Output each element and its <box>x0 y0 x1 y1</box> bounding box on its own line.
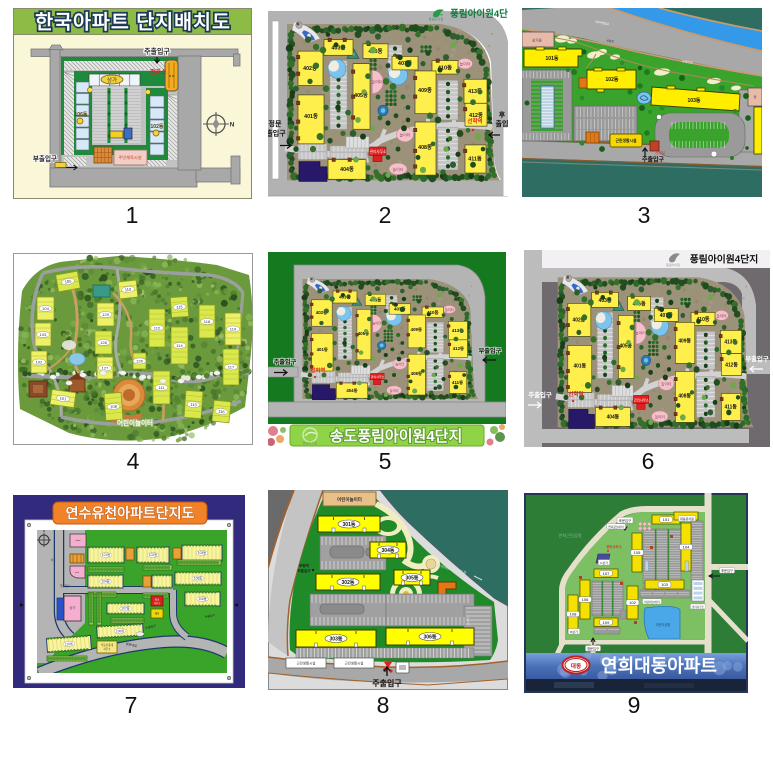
svg-text:109: 109 <box>603 620 610 625</box>
svg-text:●●●: ●●● <box>75 571 80 574</box>
svg-text:상가: 상가 <box>69 605 75 610</box>
svg-text:후: 후 <box>499 110 506 119</box>
svg-text:놀이터: 놀이터 <box>655 414 666 419</box>
svg-text:놀이터: 놀이터 <box>389 388 398 393</box>
svg-text:118: 118 <box>204 319 211 324</box>
svg-text:408동: 408동 <box>678 392 691 399</box>
svg-text:408동: 408동 <box>411 370 422 377</box>
svg-text:102동: 102동 <box>606 76 619 83</box>
svg-text:연수유천아파트단지도: 연수유천아파트단지도 <box>66 505 195 521</box>
svg-text:409동: 409동 <box>411 326 422 333</box>
svg-text:부출입구: 부출입구 <box>297 568 311 573</box>
svg-text:102: 102 <box>36 360 43 365</box>
svg-text:401동: 401동 <box>317 346 328 353</box>
svg-text:412동: 412동 <box>453 345 464 352</box>
svg-text:놀이터: 놀이터 <box>661 381 672 386</box>
svg-text:115: 115 <box>176 304 183 309</box>
svg-text:풍림아이원: 풍림아이원 <box>429 17 444 22</box>
svg-text:103동: 103동 <box>688 97 701 104</box>
svg-text:풍림아이원: 풍림아이원 <box>666 262 680 267</box>
svg-text:정문입구: 정문입구 <box>587 646 599 651</box>
svg-text:108: 108 <box>110 404 118 410</box>
svg-text:대동: 대동 <box>571 662 582 670</box>
svg-text:풍림아이원4단: 풍림아이원4단 <box>450 8 508 20</box>
svg-text:128: 128 <box>100 340 107 345</box>
svg-text:127: 127 <box>102 366 109 371</box>
svg-text:대동유치원: 대동유치원 <box>680 516 694 521</box>
svg-text:301동: 301동 <box>343 521 356 528</box>
svg-text:129: 129 <box>102 312 109 317</box>
svg-text:110동: 110동 <box>65 642 73 647</box>
svg-text:412동: 412동 <box>725 361 738 368</box>
svg-text:304동: 304동 <box>382 547 395 554</box>
svg-text:401동: 401동 <box>304 112 318 120</box>
svg-text:연희궁놀이터: 연희궁놀이터 <box>608 525 624 529</box>
svg-text:103: 103 <box>661 582 668 587</box>
svg-text:관리사무소: 관리사무소 <box>371 374 385 379</box>
svg-text:관리실: 관리실 <box>655 150 665 155</box>
svg-text:한국아파트 단지배치도: 한국아파트 단지배치도 <box>35 12 231 34</box>
svg-text:차도: 차도 <box>51 558 56 562</box>
svg-text:105동: 105동 <box>194 577 202 581</box>
svg-text:관리: 관리 <box>155 598 159 602</box>
svg-text:연희근린공원: 연희근린공원 <box>558 532 581 539</box>
svg-text:117: 117 <box>228 365 235 370</box>
svg-text:412동: 412동 <box>469 111 483 119</box>
svg-text:106: 106 <box>582 597 589 602</box>
svg-text:풍림아이원4단지: 풍림아이원4단지 <box>690 253 759 266</box>
svg-text:103: 103 <box>40 332 47 337</box>
svg-text:411동: 411동 <box>468 154 481 162</box>
svg-text:108동: 108동 <box>116 629 125 633</box>
svg-text:관리사무소: 관리사무소 <box>606 544 622 549</box>
svg-text:103동: 103동 <box>198 551 206 555</box>
svg-text:놀이터: 놀이터 <box>392 166 403 172</box>
svg-text:주출입구: 주출입구 <box>144 47 170 56</box>
svg-text:N: N <box>230 122 235 129</box>
svg-text:306동: 306동 <box>424 634 437 641</box>
svg-text:관리사무소: 관리사무소 <box>692 605 705 609</box>
svg-text:101동: 101동 <box>546 55 559 62</box>
svg-text:404동: 404동 <box>340 165 354 173</box>
svg-text:B상가: B상가 <box>570 629 578 634</box>
svg-text:107동: 107동 <box>121 607 129 611</box>
svg-text:관리소: 관리소 <box>149 68 166 76</box>
svg-text:108: 108 <box>570 612 577 617</box>
svg-text:305동: 305동 <box>406 575 419 582</box>
svg-text:401동: 401동 <box>573 362 586 369</box>
svg-text:105: 105 <box>634 550 641 555</box>
svg-text:302동: 302동 <box>342 579 355 586</box>
svg-text:101: 101 <box>663 517 670 522</box>
svg-text:부평역: 부평역 <box>299 563 309 568</box>
svg-text:106동: 106동 <box>198 597 206 601</box>
svg-text:놀이터: 놀이터 <box>716 313 727 318</box>
svg-text:관리사무소: 관리사무소 <box>634 397 649 402</box>
svg-text:놀이터: 놀이터 <box>399 131 410 137</box>
svg-text:111: 111 <box>158 385 165 390</box>
svg-text:출입: 출입 <box>496 119 508 128</box>
svg-text:411동: 411동 <box>452 379 463 386</box>
svg-text:112: 112 <box>154 326 161 331</box>
svg-text:어린이공원: 어린이공원 <box>656 622 671 627</box>
svg-text:선학역: 선학역 <box>569 390 584 398</box>
svg-text:102: 102 <box>629 600 636 605</box>
svg-text:놀이터: 놀이터 <box>395 361 404 366</box>
svg-text:404동: 404동 <box>607 413 620 420</box>
svg-text:소화전: 소화전 <box>384 658 392 662</box>
svg-text:어린이놀이터: 어린이놀이터 <box>644 600 660 604</box>
svg-text:C상가: C상가 <box>600 560 608 565</box>
svg-text:부출입구: 부출입구 <box>33 154 57 163</box>
svg-text:체육: 체육 <box>155 612 160 616</box>
svg-text:114: 114 <box>176 343 183 348</box>
svg-text:근린생활시설: 근린생활시설 <box>297 661 316 666</box>
svg-text:104: 104 <box>683 545 690 550</box>
svg-text:사무소: 사무소 <box>154 601 161 605</box>
svg-text:정문: 정문 <box>269 119 282 128</box>
svg-text:선학역: 선학역 <box>311 366 326 374</box>
svg-text:주출입구: 주출입구 <box>372 678 402 688</box>
svg-text:104동: 104동 <box>101 580 109 584</box>
svg-text:놀이터: 놀이터 <box>445 307 454 312</box>
svg-text:근린생활시설: 근린생활시설 <box>616 138 637 143</box>
svg-text:119: 119 <box>230 327 237 332</box>
svg-text:408동: 408동 <box>418 143 432 151</box>
svg-text:409동: 409동 <box>678 337 691 344</box>
svg-text:상가동: 상가동 <box>532 38 543 43</box>
svg-text:상가: 상가 <box>107 76 117 84</box>
svg-text:106동: 106동 <box>75 111 88 118</box>
svg-text:404동: 404동 <box>346 387 357 394</box>
svg-text:주출입구: 주출입구 <box>274 358 297 366</box>
svg-text:104: 104 <box>42 306 49 311</box>
svg-text:놀이터: 놀이터 <box>371 78 383 85</box>
svg-text:후문입구: 후문입구 <box>721 568 733 573</box>
svg-text:113: 113 <box>190 402 197 407</box>
svg-text:102동: 102동 <box>149 553 157 557</box>
svg-text:송도풍림아이원4단지: 송도풍림아이원4단지 <box>330 427 463 445</box>
svg-text:어린이놀이터: 어린이놀이터 <box>337 496 362 503</box>
svg-text:●●●●: ●●●● <box>75 539 81 542</box>
svg-text:126: 126 <box>136 359 143 364</box>
svg-text:놀이터: 놀이터 <box>372 321 382 326</box>
svg-text:연희대동아파트: 연희대동아파트 <box>601 656 717 676</box>
svg-text:선학역: 선학역 <box>467 117 482 125</box>
svg-text:101동: 101동 <box>102 553 110 557</box>
svg-text:부출입구: 부출입구 <box>745 354 769 363</box>
svg-text:놀이터: 놀이터 <box>635 329 646 335</box>
svg-text:107: 107 <box>603 571 610 576</box>
svg-text:근린생활시설: 근린생활시설 <box>345 661 364 666</box>
svg-text:놀이터: 놀이터 <box>459 61 470 67</box>
svg-text:주출입구: 주출입구 <box>528 390 552 399</box>
svg-text:주출입구: 주출입구 <box>60 584 71 588</box>
svg-text:부출입구: 부출입구 <box>479 347 502 355</box>
svg-text:411동: 411동 <box>724 403 737 410</box>
svg-text:출입구: 출입구 <box>268 129 286 138</box>
svg-text:관리사무소: 관리사무소 <box>370 149 387 154</box>
svg-text:어린이놀이터: 어린이놀이터 <box>117 418 153 427</box>
svg-text:사무소: 사무소 <box>103 647 111 651</box>
svg-text:풍림아이원: 풍림아이원 <box>303 441 318 446</box>
svg-text:부동산중개: 부동산중개 <box>101 643 114 647</box>
svg-text:102동: 102동 <box>151 123 164 130</box>
svg-text:후문입구: 후문입구 <box>619 518 631 523</box>
svg-text:409동: 409동 <box>418 86 432 94</box>
svg-text:303동: 303동 <box>330 636 343 643</box>
svg-text:주민체육시설: 주민체육시설 <box>118 154 141 161</box>
